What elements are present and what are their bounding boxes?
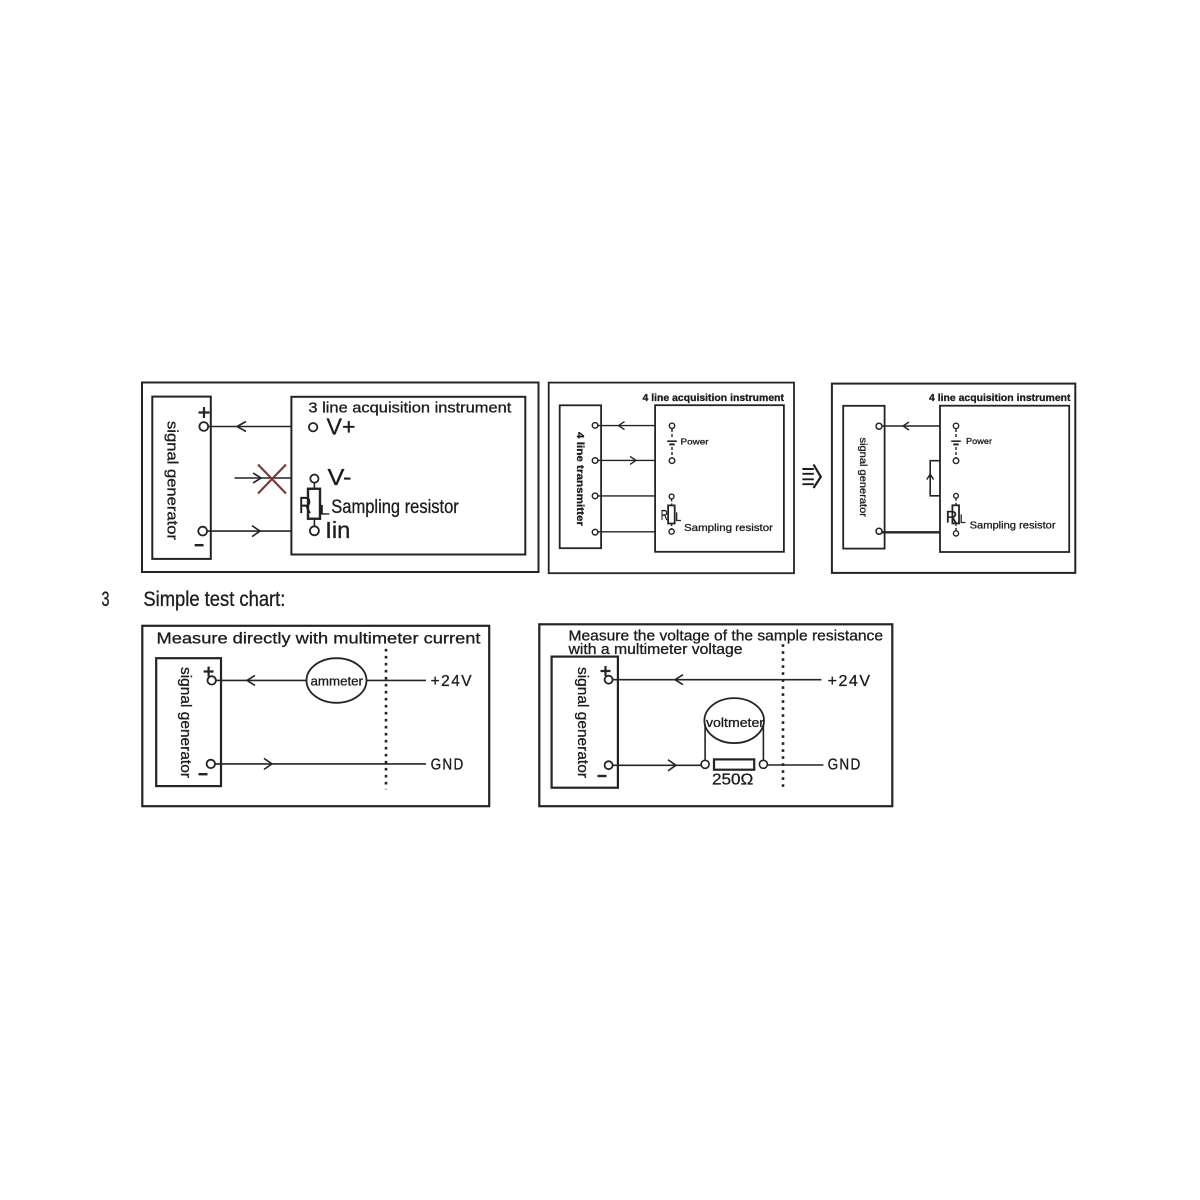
svg-text:Power: Power (966, 436, 992, 446)
svg-text:V-: V- (328, 464, 352, 490)
svg-text:L: L (960, 512, 966, 526)
svg-text:signal generator: signal generator (164, 421, 181, 540)
svg-text:ammeter: ammeter (311, 674, 364, 689)
svg-text:Iin: Iin (325, 517, 350, 543)
svg-text:GND: GND (431, 757, 465, 774)
svg-text:+24V: +24V (828, 673, 872, 690)
svg-text:Sampling resistor: Sampling resistor (684, 522, 774, 534)
svg-text:3: 3 (102, 588, 110, 611)
svg-text:GND: GND (828, 757, 862, 774)
svg-text:signal generator: signal generator (857, 438, 869, 518)
svg-text:Simple test chart:: Simple test chart: (143, 588, 285, 611)
svg-text:V+: V+ (327, 414, 356, 440)
svg-text:250Ω: 250Ω (712, 772, 753, 789)
svg-text:signal generator: signal generator (177, 667, 194, 778)
svg-text:+24V: +24V (431, 673, 474, 690)
svg-text:signal generator: signal generator (574, 667, 591, 778)
svg-text:L: L (319, 501, 330, 517)
svg-text:R: R (299, 492, 312, 518)
svg-text:4 line transmitter: 4 line transmitter (574, 432, 586, 526)
svg-text:4 line acquisition instrument: 4 line acquisition instrument (643, 392, 785, 404)
svg-text:Measure directly with multimet: Measure directly with multimeter current (157, 631, 482, 648)
svg-text:L: L (675, 510, 681, 524)
svg-text:voltmeter: voltmeter (706, 715, 765, 730)
svg-text:Sampling resistor: Sampling resistor (970, 520, 1057, 532)
svg-text:4 line acquisition instrument: 4 line acquisition instrument (929, 392, 1071, 404)
svg-text:R: R (661, 507, 668, 524)
svg-text:Power: Power (681, 437, 709, 447)
svg-text:Sampling resistor: Sampling resistor (331, 497, 459, 518)
